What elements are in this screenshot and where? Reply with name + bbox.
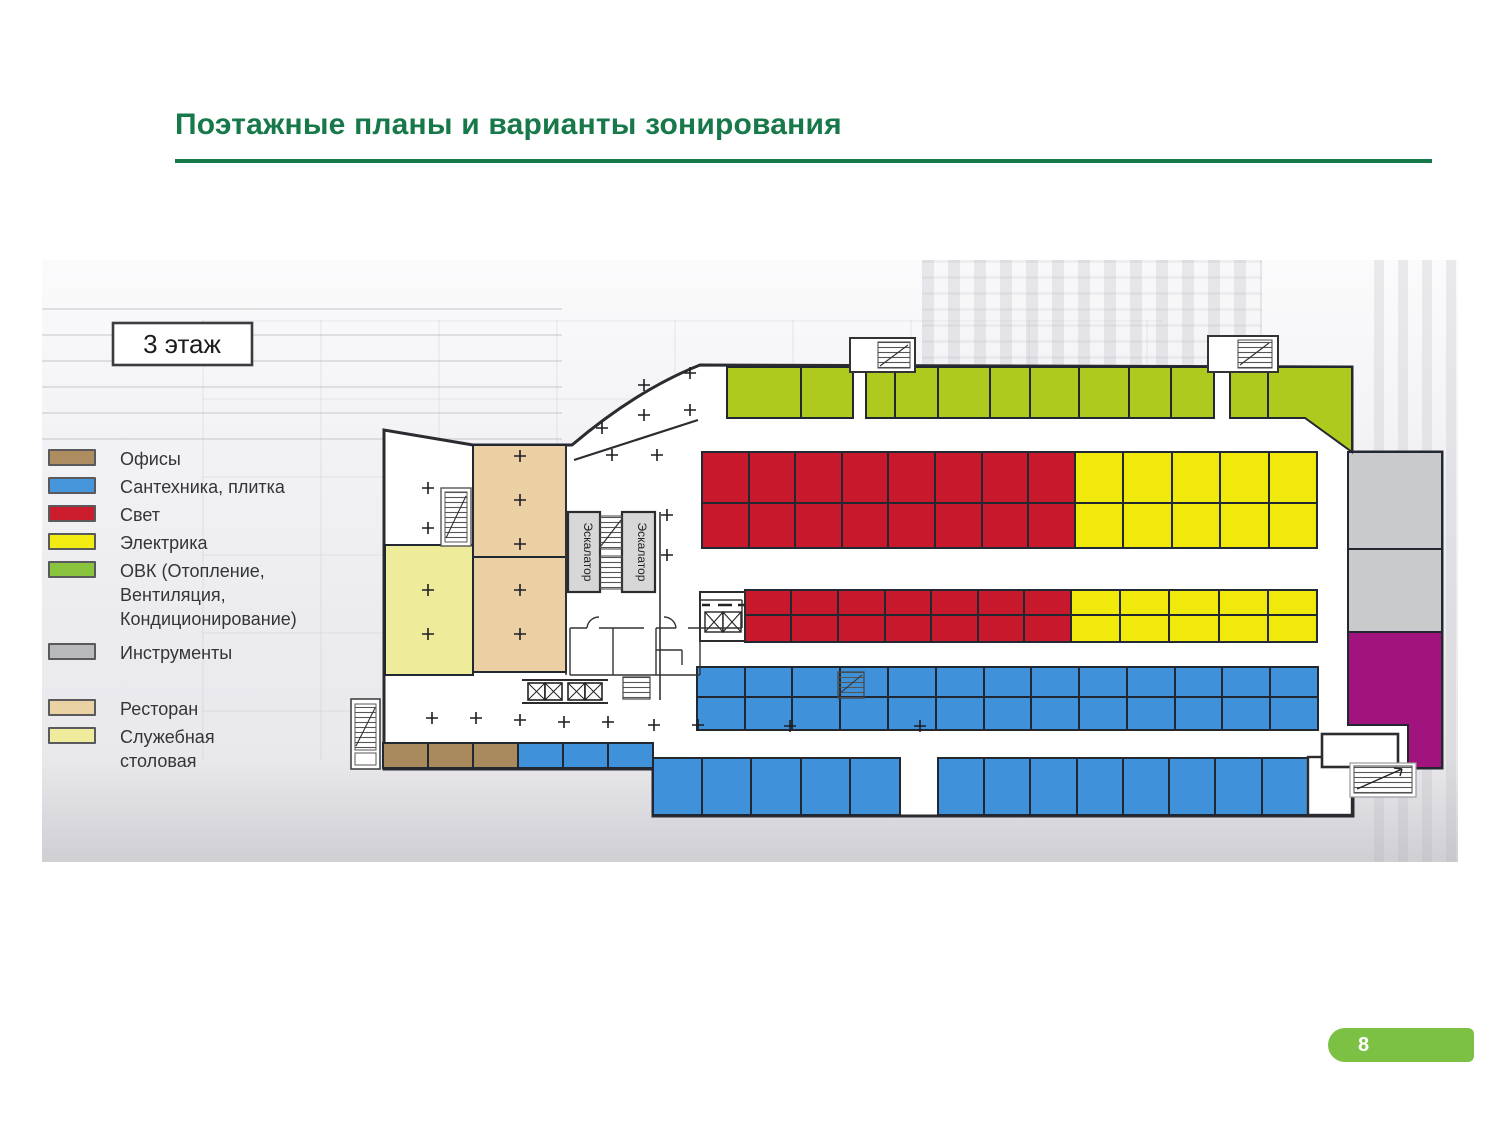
- zone-block-electrical: [1219, 590, 1268, 615]
- zone-block-light: [702, 503, 749, 548]
- zone-block-hvac: [990, 367, 1030, 418]
- zone-block-hvac: [895, 367, 938, 418]
- floorplan-panel: Эскалатор Эскалатор: [42, 260, 1458, 862]
- zone-block-light: [745, 590, 791, 615]
- zone-block-light: [1024, 590, 1071, 615]
- zone-block-hvac: [801, 367, 853, 418]
- zone-block-plumbing: [653, 758, 702, 815]
- zone-block-light: [795, 452, 842, 503]
- legend-swatch-light: [48, 505, 96, 522]
- page-number: 8: [1328, 1028, 1474, 1057]
- zone-block-plumbing: [1031, 667, 1079, 697]
- zone-block-plumbing: [801, 758, 850, 815]
- stairwell-left-top: [441, 488, 471, 546]
- zone-block-light: [931, 590, 978, 615]
- zone-block-electrical: [1219, 615, 1268, 642]
- zone-block-electrical: [1075, 503, 1123, 548]
- zone-block-plumbing: [1215, 758, 1262, 815]
- legend-label-offices: Офисы: [120, 447, 370, 471]
- zone-block-plumbing: [984, 667, 1031, 697]
- stair-central-2: [838, 672, 864, 698]
- zone-block-tools: [1348, 452, 1442, 549]
- zone-block-plumbing: [1079, 697, 1127, 730]
- page-number-badge: 8: [1328, 1028, 1474, 1062]
- zone-block-light: [982, 452, 1028, 503]
- zone-block-plumbing: [792, 697, 840, 730]
- zone-block-light: [749, 452, 795, 503]
- zone-block-light: [931, 615, 978, 642]
- zone-block-plumbing: [840, 697, 888, 730]
- legend-label-canteen: Служебная столовая: [120, 725, 370, 773]
- zone-block-light: [888, 503, 935, 548]
- zone-block-offices: [473, 743, 518, 768]
- zone-block-offices: [383, 743, 428, 768]
- zone-block-plumbing: [1175, 697, 1222, 730]
- zone-block-electrical: [1268, 590, 1317, 615]
- legend-swatch-plumbing: [48, 477, 96, 494]
- zone-block-plumbing: [518, 743, 563, 768]
- zone-block-light: [1028, 503, 1075, 548]
- zone-block-light: [978, 590, 1024, 615]
- escalator-label-1: Эскалатор: [581, 523, 595, 582]
- zone-block-plumbing: [1127, 667, 1175, 697]
- zone-block-light: [838, 590, 885, 615]
- page-title: Поэтажные планы и варианты зонирования: [175, 108, 1435, 142]
- zone-block-electrical: [1172, 452, 1220, 503]
- legend-label-plumbing: Сантехника, плитка: [120, 475, 370, 499]
- zone-block-hvac: [1129, 367, 1171, 418]
- zone-block-plumbing: [936, 667, 984, 697]
- zone-block-light: [838, 615, 885, 642]
- zone-block-light: [885, 615, 931, 642]
- zone-block-light: [1024, 615, 1071, 642]
- zone-block-light: [842, 503, 888, 548]
- zone-block-plumbing: [792, 667, 840, 697]
- zone-block-hvac: [1079, 367, 1129, 418]
- zone-block-canteen: [385, 545, 473, 675]
- zone-block-electrical: [1123, 503, 1172, 548]
- zone-block-light: [1028, 452, 1075, 503]
- zone-block-light: [795, 503, 842, 548]
- zone-block-electrical: [1169, 590, 1219, 615]
- zone-block-plumbing: [938, 758, 984, 815]
- zone-block-electrical: [1071, 615, 1120, 642]
- zone-block-plumbing: [751, 758, 801, 815]
- stairwell-top-2: [1208, 336, 1278, 372]
- zone-block-light: [982, 503, 1028, 548]
- stairwell-top-1: [850, 338, 915, 372]
- legend-label-light: Свет: [120, 503, 370, 527]
- zone-block-hvac: [938, 367, 990, 418]
- zone-block-electrical: [1220, 452, 1269, 503]
- legend-label-hvac: ОВК (Отопление, Вентиляция, Кондициониро…: [120, 559, 370, 631]
- zone-block-light: [791, 590, 838, 615]
- zone-block-hvac: [1230, 367, 1268, 418]
- zone-block-light: [885, 590, 931, 615]
- zone-block-tools: [1348, 549, 1442, 632]
- zone-block-hvac: [727, 367, 801, 418]
- zone-block-plumbing: [608, 743, 653, 768]
- zone-block-offices: [428, 743, 473, 768]
- zone-block-plumbing: [1270, 697, 1318, 730]
- zone-block-plumbing: [563, 743, 608, 768]
- zone-block-electrical: [1169, 615, 1219, 642]
- zone-block-plumbing: [1077, 758, 1123, 815]
- legend-label-tools: Инструменты: [120, 641, 370, 665]
- zone-block-plumbing: [745, 667, 792, 697]
- zone-block-plumbing: [1222, 697, 1270, 730]
- zone-block-plumbing: [702, 758, 751, 815]
- zone-block-plumbing: [1222, 667, 1270, 697]
- legend-swatch-restaurant: [48, 699, 96, 716]
- zone-block-plumbing: [888, 667, 936, 697]
- legend: Офисы Сантехника, плитка Свет Электрика …: [48, 260, 378, 862]
- zone-block-light: [745, 615, 791, 642]
- legend-swatch-electrical: [48, 533, 96, 550]
- zone-block-plumbing: [697, 697, 745, 730]
- legend-swatch-tools: [48, 643, 96, 660]
- zone-block-plumbing: [1175, 667, 1222, 697]
- legend-label-electrical: Электрика: [120, 531, 370, 555]
- zone-block-plumbing: [1262, 758, 1308, 815]
- zone-block-electrical: [1220, 503, 1269, 548]
- legend-swatch-offices: [48, 449, 96, 466]
- zone-block-plumbing: [1127, 697, 1175, 730]
- zone-block-electrical: [1269, 452, 1317, 503]
- zone-block-electrical: [1172, 503, 1220, 548]
- zone-block-electrical: [1120, 590, 1169, 615]
- zone-block-plumbing: [1169, 758, 1215, 815]
- zone-block-light: [702, 452, 749, 503]
- zone-block-plumbing: [1030, 758, 1077, 815]
- stair-central-1: [623, 677, 650, 699]
- zone-block-electrical: [1071, 590, 1120, 615]
- legend-swatch-canteen: [48, 727, 96, 744]
- zone-block-electrical: [1123, 452, 1172, 503]
- zone-block-plumbing: [984, 697, 1031, 730]
- zone-block-restaurant: [473, 557, 566, 672]
- zone-block-plumbing: [984, 758, 1030, 815]
- zone-block-plumbing: [936, 697, 984, 730]
- zone-block-light: [935, 503, 982, 548]
- zone-block-light: [888, 452, 935, 503]
- zone-block-plumbing: [850, 758, 900, 815]
- legend-label-restaurant: Ресторан: [120, 697, 370, 721]
- zone-block-electrical: [1269, 503, 1317, 548]
- zone-block-electrical: [1120, 615, 1169, 642]
- zone-block-electrical: [1075, 452, 1123, 503]
- legend-swatch-hvac: [48, 561, 96, 578]
- zone-block-hvac: [1171, 367, 1214, 418]
- zone-block-plumbing: [1270, 667, 1318, 697]
- zone-block-plumbing: [745, 697, 792, 730]
- zone-block-light: [791, 615, 838, 642]
- zone-block-plumbing: [697, 667, 745, 697]
- zone-block-electrical: [1268, 615, 1317, 642]
- title-underline: [175, 159, 1432, 163]
- zone-block-plumbing: [1123, 758, 1169, 815]
- zone-block-light: [842, 452, 888, 503]
- zone-block-hvac: [866, 367, 895, 418]
- zone-block-light: [749, 503, 795, 548]
- zone-block-plumbing: [1079, 667, 1127, 697]
- zone-block-hvac: [1030, 367, 1079, 418]
- escalator-label-2: Эскалатор: [635, 523, 649, 582]
- zone-block-light: [935, 452, 982, 503]
- zone-block-light: [978, 615, 1024, 642]
- slide: Поэтажные планы и варианты зонирования: [0, 0, 1500, 1125]
- zone-block-plumbing: [1031, 697, 1079, 730]
- zone-block-plumbing: [888, 697, 936, 730]
